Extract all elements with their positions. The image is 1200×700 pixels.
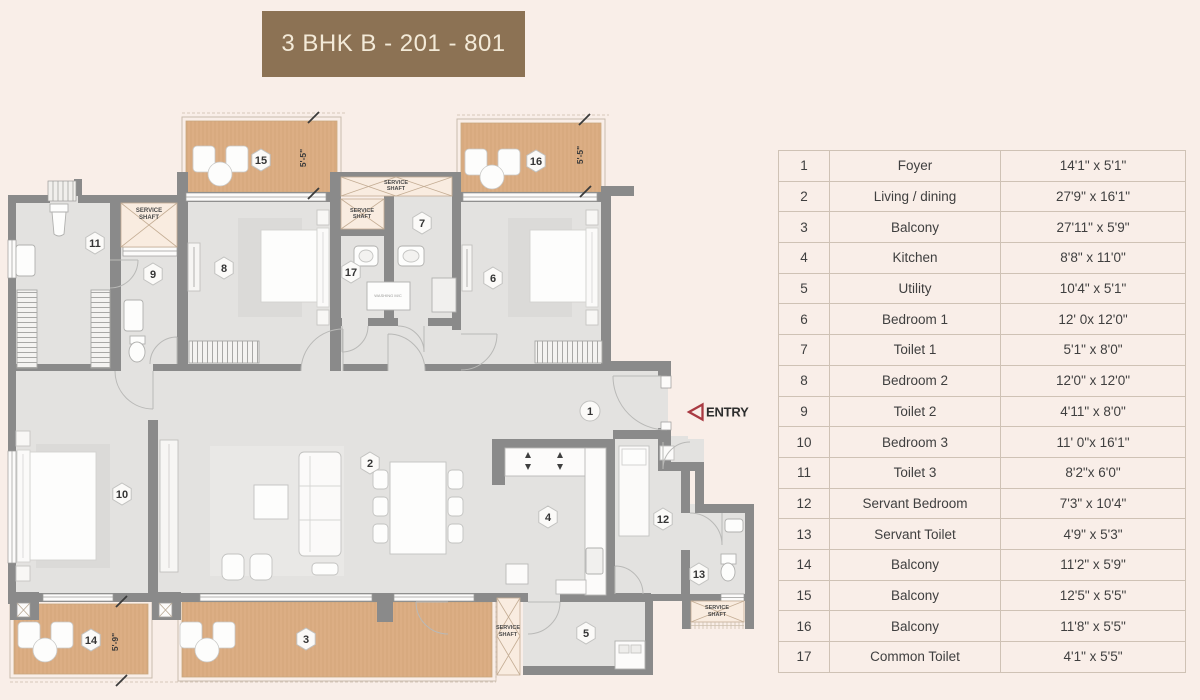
svg-text:7: 7 — [419, 218, 425, 230]
svg-text:SHAFT: SHAFT — [708, 612, 727, 618]
svg-text:17: 17 — [345, 267, 357, 279]
svg-text:5'-5": 5'-5" — [575, 146, 585, 164]
svg-text:5: 5 — [583, 628, 589, 640]
svg-text:13: 13 — [693, 569, 705, 581]
svg-text:10: 10 — [116, 489, 128, 501]
svg-text:WASHING M/C: WASHING M/C — [374, 293, 402, 298]
svg-text:14: 14 — [85, 635, 98, 647]
svg-text:SHAFT: SHAFT — [353, 214, 372, 220]
svg-text:SERVICE: SERVICE — [496, 625, 520, 631]
svg-text:9: 9 — [150, 269, 156, 281]
svg-text:3: 3 — [303, 634, 309, 646]
svg-text:SHAFT: SHAFT — [139, 215, 159, 221]
svg-text:4: 4 — [545, 512, 552, 524]
svg-text:6: 6 — [490, 273, 496, 285]
svg-text:11: 11 — [89, 238, 101, 250]
svg-text:1: 1 — [587, 406, 593, 418]
svg-text:SERVICE: SERVICE — [136, 208, 162, 214]
svg-text:SERVICE: SERVICE — [705, 605, 729, 611]
svg-text:12: 12 — [657, 514, 669, 526]
svg-text:8: 8 — [221, 263, 227, 275]
svg-text:5'-9": 5'-9" — [110, 633, 120, 651]
svg-text:ENTRY: ENTRY — [706, 405, 749, 420]
svg-text:5'-5": 5'-5" — [298, 149, 308, 167]
svg-text:SHAFT: SHAFT — [387, 186, 406, 192]
svg-text:16: 16 — [530, 156, 542, 168]
svg-text:15: 15 — [255, 155, 267, 167]
svg-text:SHAFT: SHAFT — [499, 632, 518, 638]
svg-text:2: 2 — [367, 458, 373, 470]
